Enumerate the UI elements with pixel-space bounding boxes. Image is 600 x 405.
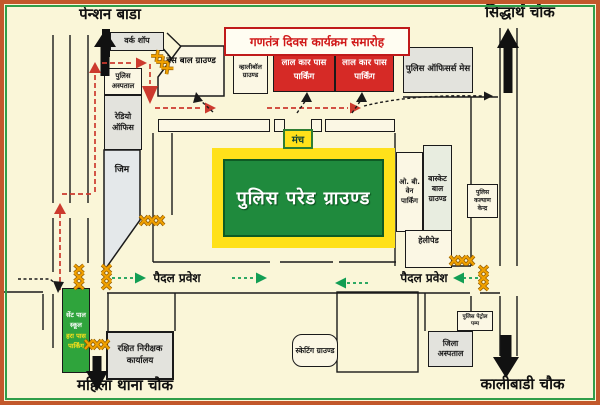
- red-route-arrowheads: [54, 58, 361, 215]
- arrow-mahila-thana-chowk: [86, 356, 108, 391]
- pedestrian-route: [112, 278, 484, 283]
- arrow-kalibadi-chowk: [493, 335, 519, 378]
- arrow-siddharth-chowk: [497, 28, 519, 93]
- barricade-right-entrance: [479, 266, 488, 290]
- black-guide-arrowheads: [53, 92, 493, 294]
- black-guide-routes: [18, 96, 482, 286]
- barricade-diagonal-road: [151, 50, 173, 74]
- barricade-left-entrance-2: [102, 265, 111, 289]
- barricade-left-entrance-1: [75, 265, 84, 289]
- republic-day-venue-map: गणतंत्र दिवस कार्यक्रम समारोह पेन्शन बाड…: [0, 0, 600, 405]
- barricade-green-parking: [85, 340, 109, 349]
- barricade-helipad: [450, 256, 474, 265]
- pedestrian-arrowheads: [135, 273, 464, 289]
- routes-and-arrows: [0, 0, 600, 405]
- barricade-gym-corner: [140, 216, 164, 225]
- barricades: [75, 50, 489, 349]
- direction-arrows: [86, 28, 519, 391]
